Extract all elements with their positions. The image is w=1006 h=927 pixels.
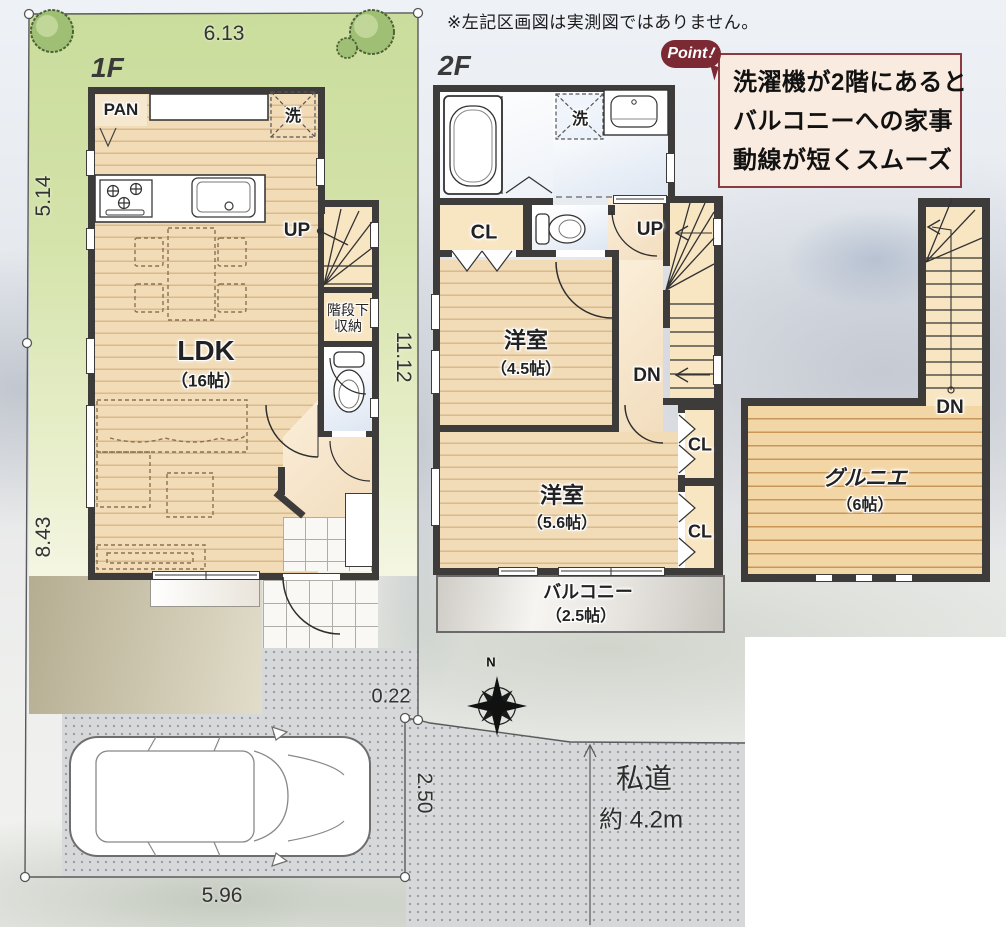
- wall: [372, 200, 379, 580]
- wall: [678, 403, 723, 410]
- window: [713, 218, 722, 246]
- private-road-area: [406, 716, 745, 927]
- shoe-cabinet: [345, 493, 373, 567]
- window: [86, 150, 95, 176]
- entrance-approach: [263, 580, 378, 648]
- wall: [663, 290, 670, 328]
- window: [370, 222, 379, 248]
- up-label: UP: [284, 220, 310, 242]
- wall: [918, 198, 990, 207]
- dim-lot-left-upper: 5.14: [32, 176, 56, 217]
- wall: [321, 287, 372, 293]
- wall: [608, 205, 615, 215]
- wall: [433, 425, 619, 432]
- sliding-window: [558, 567, 665, 576]
- balcony-size-label: （2.5帖）: [546, 602, 616, 626]
- window: [86, 228, 95, 250]
- wall: [612, 257, 619, 432]
- wall: [433, 85, 675, 92]
- bath-floor: [440, 92, 553, 198]
- ldk-size-label: （16帖）: [171, 367, 241, 392]
- wall: [321, 341, 372, 347]
- vent: [815, 574, 833, 582]
- up-label: UP: [637, 219, 663, 241]
- loft-size-label: （6帖）: [837, 491, 894, 515]
- balcony-label: バルコニー: [543, 578, 633, 604]
- point-text-line: 洗濯機が2階にあると: [733, 63, 960, 102]
- disclaimer-note: ※左記区画図は実測図ではありません。: [447, 8, 759, 33]
- point-badge: Point!: [661, 40, 721, 68]
- sliding-window: [152, 571, 260, 580]
- dn-hall-floor: [619, 260, 663, 432]
- point-callout-box: 洗濯機が2階にあると バルコニーへの家事 動線が短くスムーズ: [718, 53, 962, 188]
- wall: [318, 200, 379, 207]
- dn-label: DN: [936, 397, 963, 419]
- ldk-label: LDK: [177, 335, 235, 367]
- stair-storage-line1: 階段下: [327, 302, 369, 318]
- pantry-label: PAN: [104, 100, 139, 120]
- washer-label: 洗: [572, 105, 588, 129]
- wall: [918, 198, 926, 406]
- exclamation-icon: !: [706, 40, 718, 68]
- window: [86, 338, 95, 374]
- wall: [88, 87, 325, 94]
- stairs1-floor: [324, 207, 372, 287]
- floor-label-2f: 2F: [438, 50, 471, 82]
- window: [431, 350, 440, 394]
- washroom-floor: [553, 92, 668, 198]
- wall: [678, 410, 685, 478]
- window: [713, 355, 722, 385]
- wall: [318, 207, 324, 437]
- wall: [678, 486, 685, 568]
- dim-lot-left-lower: 8.43: [32, 517, 56, 558]
- wall: [318, 87, 325, 214]
- dim-parking-width: 5.96: [202, 884, 243, 908]
- point-badge-label: Point: [667, 45, 707, 62]
- bed56-size-label: （5.6帖）: [527, 509, 597, 533]
- bed45-size-label: （4.5帖）: [491, 355, 561, 379]
- sliding-door: [613, 195, 667, 204]
- window: [431, 468, 440, 526]
- compass-north-label: N: [486, 655, 495, 670]
- dim-lot-right: 11.12: [391, 332, 415, 383]
- blank-area: [745, 637, 1006, 927]
- stairs2-floor: [670, 203, 714, 400]
- floor-label-1f: 1F: [91, 52, 124, 84]
- window: [370, 398, 379, 418]
- point-text-line: 動線が短くスムーズ: [733, 141, 960, 180]
- bed56-label: 洋室: [540, 478, 584, 510]
- dim-parking-depth: 2.50: [412, 773, 436, 814]
- dim-corner-offset: 0.22: [372, 686, 411, 709]
- wall: [433, 198, 553, 205]
- dn-label: DN: [633, 365, 660, 387]
- sliding-window: [498, 567, 538, 576]
- window: [316, 158, 325, 186]
- window: [86, 405, 95, 508]
- wall: [663, 203, 670, 266]
- wall: [982, 198, 990, 582]
- washer-label: 洗: [285, 102, 301, 126]
- door-opening: [332, 431, 366, 437]
- wall: [433, 250, 556, 257]
- vent: [895, 574, 913, 582]
- wall: [523, 205, 532, 253]
- toilet1-floor: [324, 347, 372, 431]
- loft-label: グルニエ: [823, 462, 907, 492]
- wall: [741, 398, 748, 582]
- closet-label: CL: [688, 522, 712, 543]
- stair-storage-line2: 収納: [327, 318, 369, 334]
- loft-stairs-floor: [926, 207, 982, 406]
- wall: [678, 478, 716, 486]
- wall: [741, 398, 926, 406]
- wall: [714, 196, 723, 575]
- window: [370, 298, 379, 328]
- window: [666, 153, 675, 183]
- wall: [605, 250, 619, 257]
- floor-plan-page: ※左記区画図は実測図ではありません。 洗濯機が2階にあると バルコニーへの家事 …: [0, 0, 1006, 927]
- parking-area: [62, 714, 406, 877]
- door-opening: [283, 574, 340, 580]
- closet-label: CL: [688, 435, 712, 456]
- point-text-line: バルコニーへの家事: [733, 102, 960, 141]
- porch-step: [150, 577, 260, 607]
- door-opening: [556, 250, 605, 257]
- road-name-label: 私道: [616, 757, 672, 797]
- closet-label: CL: [471, 222, 498, 245]
- window: [431, 294, 440, 330]
- stair-storage-label: 階段下 収納: [327, 302, 369, 334]
- vent: [855, 574, 873, 582]
- bed45-label: 洋室: [504, 323, 548, 355]
- toilet2-floor: [532, 205, 608, 250]
- road-width-label: 約 4.2m: [599, 800, 683, 835]
- dim-lot-width: 6.13: [204, 22, 245, 46]
